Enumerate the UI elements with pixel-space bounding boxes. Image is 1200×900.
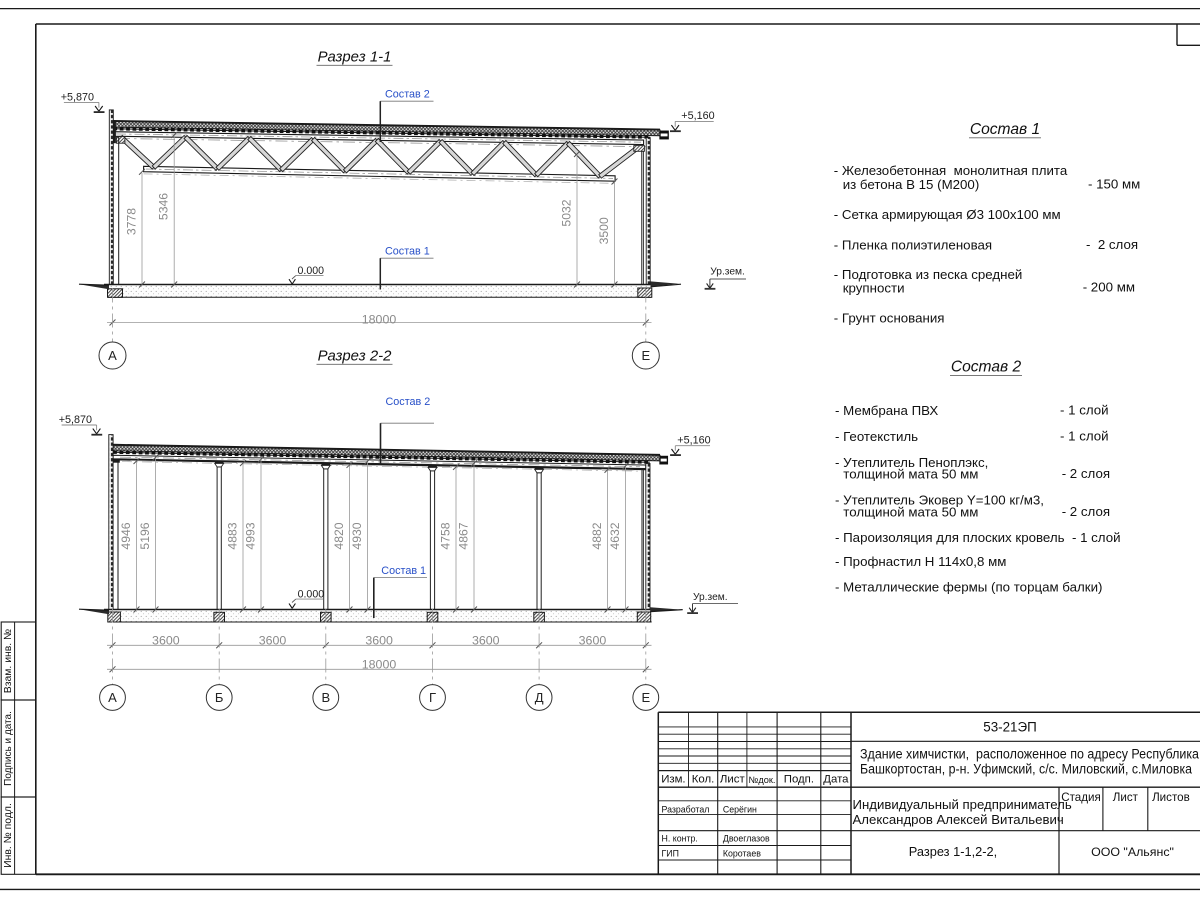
svg-text:Лист: Лист	[720, 774, 746, 786]
svg-text:- Профнастил Н 114х0,8 мм: - Профнастил Н 114х0,8 мм	[835, 554, 1006, 569]
svg-text:3600: 3600	[152, 634, 180, 648]
svg-text:4632: 4632	[608, 522, 622, 549]
svg-text:4993: 4993	[243, 522, 257, 549]
svg-text:толщиной мата 50 мм: толщиной мата 50 мм	[843, 504, 978, 519]
svg-text:толщиной мата 50 мм: толщиной мата 50 мм	[843, 467, 978, 482]
svg-text:- 1 слой: - 1 слой	[1060, 402, 1109, 417]
svg-text:Состав 2: Состав 2	[385, 89, 430, 101]
svg-text:Ур.зем.: Ур.зем.	[710, 266, 745, 277]
svg-text:Подп.: Подп.	[784, 774, 814, 786]
svg-text:Двоеглазов: Двоеглазов	[723, 834, 770, 844]
svg-text:4882: 4882	[590, 522, 604, 549]
svg-text:4930: 4930	[350, 522, 364, 549]
svg-text:Н. контр.: Н. контр.	[662, 834, 698, 844]
svg-text:Стадия: Стадия	[1061, 791, 1101, 804]
svg-text:- Грунт основания: - Грунт основания	[834, 311, 945, 326]
svg-text:Е: Е	[641, 348, 650, 363]
svg-text:3600: 3600	[472, 634, 500, 648]
svg-text:крупности: крупности	[843, 281, 905, 296]
svg-text:В: В	[321, 690, 330, 705]
svg-text:3600: 3600	[259, 634, 287, 648]
svg-text:Серёгин: Серёгин	[723, 805, 757, 815]
svg-text:Разрез 2-2: Разрез 2-2	[318, 349, 393, 365]
svg-text:Ур.зем.: Ур.зем.	[693, 592, 728, 603]
svg-text:- Пленка полиэтиленовая: - Пленка полиэтиленовая	[834, 238, 992, 253]
svg-text:Г: Г	[429, 690, 436, 705]
svg-text:Александров Алексей Витальевич: Александров Алексей Витальевич	[853, 812, 1064, 827]
svg-text:Разрез 1-1,2-2,: Разрез 1-1,2-2,	[909, 844, 997, 859]
svg-text:+5,870: +5,870	[61, 92, 94, 104]
svg-text:53-21ЭП: 53-21ЭП	[983, 720, 1037, 735]
svg-text:5196: 5196	[138, 522, 152, 549]
svg-text:Здание химчистки, расположенн: Здание химчистки, расположенное по адрес…	[860, 746, 1200, 761]
svg-text:- 200 мм: - 200 мм	[1083, 279, 1135, 294]
svg-text:5346: 5346	[157, 193, 171, 220]
svg-text:из бетона В 15 (М200): из бетона В 15 (М200)	[843, 177, 980, 192]
svg-text:- 150 мм: - 150 мм	[1088, 177, 1140, 192]
svg-text:3600: 3600	[365, 634, 393, 648]
svg-text:- Металлические фермы (по торц: - Металлические фермы (по торцам балки)	[835, 579, 1102, 594]
svg-text:Изм.: Изм.	[661, 774, 685, 786]
svg-text:18000: 18000	[362, 658, 397, 672]
svg-text:3600: 3600	[579, 634, 607, 648]
svg-text:+5,160: +5,160	[677, 434, 710, 446]
svg-text:А: А	[108, 690, 117, 705]
svg-text:4867: 4867	[456, 522, 470, 549]
svg-text:- 2 слоя: - 2 слоя	[1062, 504, 1110, 519]
svg-text:Б: Б	[215, 690, 224, 705]
svg-text:- Сетка армирующая Ø3 100х100: - Сетка армирующая Ø3 100х100 мм	[834, 207, 1061, 222]
svg-text:Инв. № подл.: Инв. № подл.	[3, 803, 14, 868]
svg-text:Разработал: Разработал	[662, 805, 710, 815]
svg-text:Состав 1: Состав 1	[970, 121, 1040, 138]
svg-text:А: А	[108, 348, 117, 363]
svg-text:4758: 4758	[438, 522, 452, 549]
svg-text:ООО "Альянс": ООО "Альянс"	[1091, 845, 1174, 859]
svg-text:Коротаев: Коротаев	[723, 849, 761, 859]
svg-text:Е: Е	[641, 690, 650, 705]
svg-text:+5,160: +5,160	[681, 110, 714, 122]
svg-text:Дата: Дата	[823, 774, 849, 786]
svg-text:3500: 3500	[597, 217, 611, 244]
svg-text:4820: 4820	[332, 522, 346, 549]
svg-text:Состав 2: Состав 2	[951, 359, 1022, 376]
svg-text:Состав 1: Состав 1	[381, 565, 426, 577]
svg-text:4883: 4883	[225, 522, 239, 549]
svg-text:Лист: Лист	[1113, 791, 1139, 804]
svg-text:5032: 5032	[559, 199, 573, 226]
svg-text:- Пароизоляция для плоских кро: - Пароизоляция для плоских кровель - 1 с…	[835, 530, 1121, 545]
svg-text:ГИП: ГИП	[662, 849, 679, 859]
svg-text:№док.: №док.	[749, 775, 776, 785]
svg-text:Взам. инв. №: Взам. инв. №	[3, 629, 14, 693]
svg-text:0.000: 0.000	[298, 265, 325, 277]
svg-text:Д: Д	[535, 690, 544, 705]
svg-text:- 2 слоя: - 2 слоя	[1062, 466, 1110, 481]
svg-text:Состав 2: Состав 2	[386, 396, 431, 408]
svg-text:- 1 слой: - 1 слой	[1060, 428, 1109, 443]
svg-text:Кол.: Кол.	[692, 774, 715, 786]
svg-text:- Мембрана ПВХ: - Мембрана ПВХ	[835, 403, 938, 418]
svg-text:Подпись и дата.: Подпись и дата.	[3, 711, 14, 786]
svg-text:Состав 1: Состав 1	[385, 246, 430, 258]
svg-text:Листов: Листов	[1152, 791, 1190, 804]
svg-text:Индивидуальный предприниматель: Индивидуальный предприниматель	[853, 797, 1072, 812]
svg-text:+5,870: +5,870	[59, 414, 92, 426]
svg-text:0.000: 0.000	[298, 588, 325, 600]
svg-text:Разрез 1-1: Разрез 1-1	[318, 50, 392, 66]
svg-text:- Геотекстиль: - Геотекстиль	[835, 429, 918, 444]
svg-text:- Железобетонная монолитная п: - Железобетонная монолитная плита	[834, 163, 1068, 178]
svg-text:4946: 4946	[119, 522, 133, 549]
svg-text:3778: 3778	[124, 208, 138, 235]
svg-text:Башкортостан, р-н. Уфимский, с: Башкортостан, р-н. Уфимский, с/с. Миловс…	[860, 761, 1193, 776]
svg-text:18000: 18000	[362, 313, 397, 327]
svg-text:- 2 слоя: - 2 слоя	[1086, 237, 1138, 252]
